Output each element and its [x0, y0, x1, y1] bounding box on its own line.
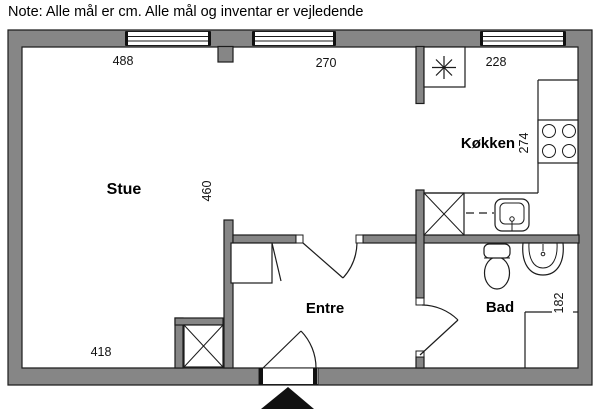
- dim-270: 270: [316, 56, 337, 70]
- dim-488: 488: [113, 54, 134, 68]
- stue-crossbox-cabinet: [184, 325, 223, 367]
- jamb-entre-right: [356, 235, 363, 243]
- dim-460: 460: [200, 181, 214, 202]
- wall-closet-top: [175, 318, 223, 325]
- toilet-icon: [484, 244, 510, 289]
- wall-bad-left-upper: [416, 190, 424, 298]
- room-label-stue: Stue: [107, 181, 142, 198]
- wall-entre-top-left: [233, 235, 296, 243]
- wall-bad-left-lower: [416, 357, 424, 368]
- entrance-arrow-icon: [261, 387, 314, 409]
- jamb-bad-top: [416, 298, 424, 305]
- window-kokken: [480, 32, 566, 46]
- door-bad: [420, 305, 458, 355]
- floorplan-svg: 488 270 228 418 274 460 182 Stue Køkken …: [0, 0, 600, 415]
- window-mid: [252, 32, 336, 46]
- kitchen-crossbox-cabinet: [424, 193, 464, 235]
- entre-closet: [231, 243, 281, 283]
- room-label-entre: Entre: [306, 300, 344, 317]
- shower-corner: [525, 312, 578, 368]
- wall-stub-top: [218, 47, 233, 63]
- dim-274: 274: [517, 133, 531, 154]
- dim-418: 418: [91, 345, 112, 359]
- dim-228: 228: [486, 55, 507, 69]
- kitchen-sink-icon: [495, 199, 529, 231]
- fridge-star-icon: [424, 47, 465, 87]
- wall-entre-top-right: [363, 235, 416, 243]
- wall-kitchen-stub: [416, 47, 424, 104]
- jamb-entre-left: [296, 235, 303, 243]
- floorplan-canvas: Note: Alle mål er cm. Alle mål og invent…: [0, 0, 600, 415]
- window-stue: [125, 32, 211, 46]
- stove-icon: [538, 120, 578, 163]
- entrance-door: [259, 331, 318, 385]
- room-label-kokken: Køkken: [461, 135, 515, 152]
- dim-182: 182: [552, 293, 566, 314]
- door-entre: [303, 243, 357, 278]
- wall-stue-entre: [224, 220, 233, 368]
- wall-bad-top: [416, 235, 579, 243]
- room-label-bad: Bad: [486, 299, 514, 316]
- bathroom-sink-icon: [523, 243, 564, 275]
